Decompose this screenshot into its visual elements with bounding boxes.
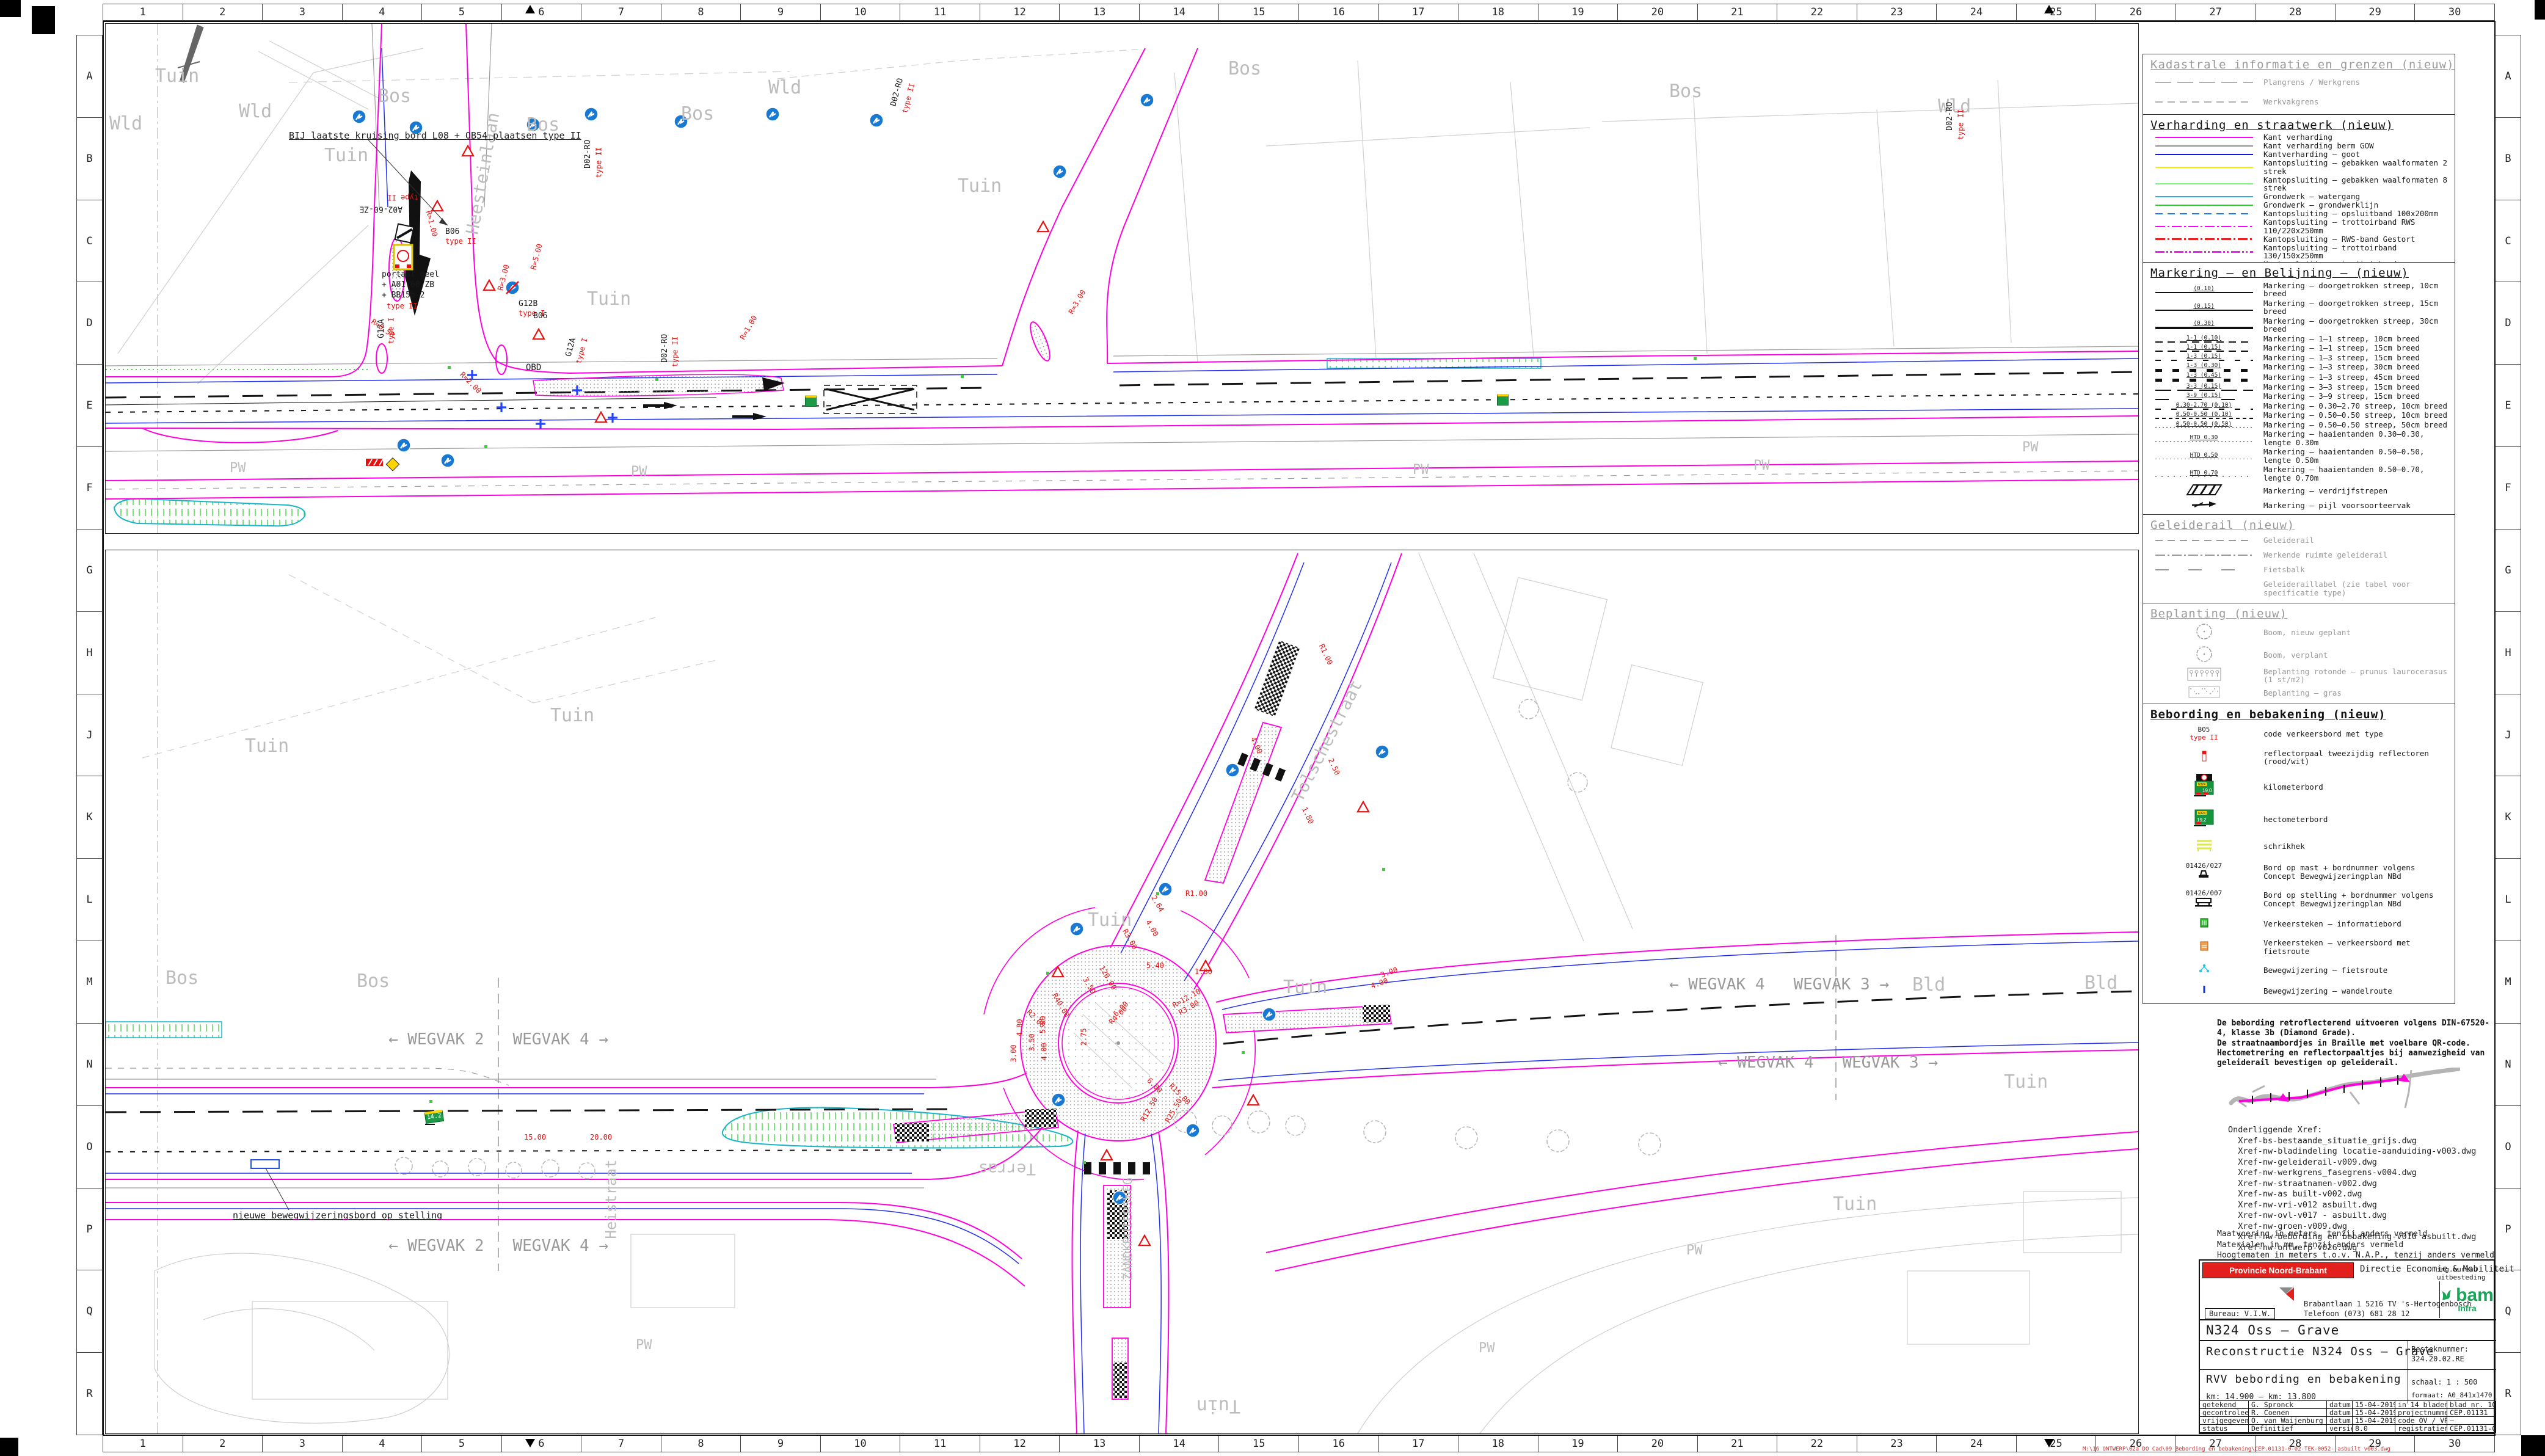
grid-number-cell: 11 <box>900 4 980 21</box>
legend-label: Beplanting rotonde – prunus laurocerasus… <box>2263 668 2449 685</box>
legend-code: 01426/007 <box>2186 890 2223 897</box>
legend-sample <box>2150 82 2257 83</box>
grid-number-cell: 28 <box>2256 4 2336 21</box>
hectometer-board <box>1497 394 1509 406</box>
d02-sign-icons <box>352 93 1154 467</box>
legend-label: Grondwerk – watergang <box>2263 192 2360 201</box>
legend-line-sample <box>2155 154 2253 155</box>
grid-number-cell: 9 <box>741 4 821 21</box>
map-label: Tuin <box>1283 978 1327 997</box>
map-label: ← WEGVAK 4 WEGVAK 3 → <box>1669 977 1889 993</box>
title-block-cell: datum <box>2327 1409 2353 1417</box>
map-label: D02-RO <box>661 334 669 363</box>
map-label: portaal geel <box>382 271 439 279</box>
legend-section-title: Beplanting (nieuw) <box>2150 607 2449 621</box>
legend-row: Kantopsluiting – gebakken waalformaten 2… <box>2150 159 2449 176</box>
legend-row: HTD 0.50Markering – haaientanden 0.50–0.… <box>2150 448 2449 465</box>
legend-line-sample <box>2155 183 2253 184</box>
legend-sample: 1-3 (0.15) <box>2150 354 2257 361</box>
map-label: PW <box>636 1338 652 1352</box>
legend-code-type: type II <box>2190 734 2218 741</box>
legend-label: Verkeersteken – informatiebord <box>2263 920 2401 928</box>
grid-number-cell: 30 <box>2415 1435 2495 1452</box>
legend-sample <box>2150 213 2257 214</box>
legend-line-sample: HTD 0.30 <box>2155 441 2253 442</box>
top-ruler: 1234567891011121314151617181920212223242… <box>103 4 2495 21</box>
legend-label: Markering – 1–3 streep, 30cm breed <box>2263 363 2420 371</box>
grid-number-cell: 9 <box>741 1435 821 1452</box>
legend-line-tag: 1-3 (0.30) <box>2155 362 2253 369</box>
provincie-logo-icon <box>2278 1286 2296 1305</box>
legend-line-sample <box>2155 82 2253 83</box>
legend-line-tag: 0.50-0.50 (0.50) <box>2155 421 2253 428</box>
corner-mark <box>2521 1435 2545 1456</box>
legend-row: 1-1 (0.15)Markering – 1–1 streep, 15cm b… <box>2150 344 2449 352</box>
legend-label: schrikhek <box>2263 842 2305 851</box>
grid-number-cell: 13 <box>1060 4 1140 21</box>
map-label: Tuin <box>1088 911 1132 930</box>
map-label: Tuin <box>1196 1396 1240 1416</box>
grid-number-cell: 10 <box>821 1435 901 1452</box>
legend-line-sample: 3-3 (0.15) <box>2155 390 2253 391</box>
legend-section-title: Markering – en Belijning – (nieuw) <box>2150 266 2449 280</box>
grid-number-cell: 15 <box>1219 1435 1299 1452</box>
project-title: N324 Oss – Grave <box>2206 1323 2339 1338</box>
map-label: B06 <box>533 312 547 321</box>
grid-number-cell: 12 <box>980 4 1060 21</box>
legend-label: Markering – pijl voorsoorteervak <box>2263 501 2411 510</box>
legend-line-tag: 1-3 (0.45) <box>2155 372 2253 379</box>
legend-row: N32419,0kilometerbord <box>2150 774 2449 801</box>
corner-mark <box>2535 0 2545 20</box>
legend-label: Markering – 3–3 streep, 15cm breed <box>2263 383 2420 391</box>
grid-letter-cell: G <box>76 530 103 612</box>
legend-label: Bewegwijzering – fietsroute <box>2263 966 2387 975</box>
xref-file: Xref-nw-werkgrens_fasegrens-v004.dwg <box>2228 1168 2476 1179</box>
map-label: ZANDKRUIERSWEG <box>1122 1178 1135 1281</box>
map-label: 5.00 <box>1039 1016 1047 1033</box>
legend-line-tag: 1-1 (0.15) <box>2155 344 2253 351</box>
map-label: 3.00 <box>1010 1044 1018 1062</box>
grid-letter-cell: D <box>76 282 103 365</box>
map-label: PW <box>230 461 246 475</box>
grid-letter-cell: C <box>76 200 103 283</box>
grid-letter-cell: J <box>2495 694 2521 777</box>
grid-number-cell: 1 <box>103 1435 183 1452</box>
grid-number-cell: 25 <box>2017 4 2097 21</box>
legend-row: Kant verharding berm GOW <box>2150 142 2449 150</box>
grid-number-cell: 19 <box>1538 1435 1618 1452</box>
legend-sample: (0.30) <box>2150 321 2257 329</box>
b01-sign-icon <box>386 458 399 471</box>
legend-sample <box>2150 226 2257 228</box>
grid-number-cell: 30 <box>2415 4 2495 21</box>
title-block-cell: 15-04-2019 <box>2353 1409 2395 1417</box>
formaat: formaat: A0_841x1470 <box>2411 1391 2492 1399</box>
grid-letter-cell: R <box>76 1353 103 1435</box>
legend-sample <box>2150 622 2257 643</box>
zone60-portal-icon <box>394 224 413 269</box>
legend-row: 1-3 (0.15)Markering – 1–3 streep, 15cm b… <box>2150 353 2449 362</box>
legend-sample: HTD 0.30 <box>2150 435 2257 442</box>
legend-section: Verharding en straatwerk (nieuw)Kant ver… <box>2143 114 2455 263</box>
legend-sample <box>2150 555 2257 556</box>
title-block-cell: getekend <box>2200 1401 2249 1409</box>
note-line: Hectometrering en reflectorpaaltjes bij … <box>2217 1049 2492 1069</box>
legend-sample <box>2150 196 2257 197</box>
map-label: type II <box>1957 109 1965 140</box>
legend-code: 01426/027 <box>2186 862 2223 870</box>
map-label: + BB15b-2 <box>382 291 424 300</box>
legend-row: (0.15)Markering – doorgetrokken streep, … <box>2150 299 2449 316</box>
legend-line-tag: HTD 0.30 <box>2155 434 2253 441</box>
legend-row: Werkvakgrens <box>2150 98 2449 106</box>
map-label: 5.40 <box>1146 962 1164 970</box>
legend-line-sample: 0.50-0.50 (0.10) <box>2155 418 2253 419</box>
legend-line-tag: HTD 0.50 <box>2155 452 2253 459</box>
legend-row: HTD 0.30Markering – haaientanden 0.30–0.… <box>2150 430 2449 447</box>
title-block-cell: projectnummer <box>2395 1409 2447 1417</box>
legend-line-sample <box>2155 213 2253 214</box>
title-block-cell: vrijgegeven <box>2200 1417 2249 1425</box>
legend-sample <box>2150 101 2257 103</box>
fold-mark <box>2044 5 2054 13</box>
grid-number-cell: 5 <box>422 1435 502 1452</box>
map-label: type II <box>387 194 418 202</box>
map-label: G12B <box>519 300 537 308</box>
grid-number-cell: 19 <box>1538 4 1618 21</box>
sym-shrub-icon <box>2187 668 2221 683</box>
grid-number-cell: 14 <box>1140 1435 1220 1452</box>
grid-number-cell: 2 <box>183 4 263 21</box>
legend-label: Markering – 1–3 streep, 45cm breed <box>2263 373 2420 382</box>
legend-section-title: Verharding en straatwerk (nieuw) <box>2150 118 2449 132</box>
grid-letter-cell: A <box>76 35 103 118</box>
title-block-cell: Definitief <box>2249 1425 2327 1433</box>
legend-line-tag: (0.30) <box>2155 320 2253 327</box>
general-notes: De bebording retroflecterend uitvoeren v… <box>2217 1019 2492 1068</box>
grid-letter-cell: K <box>76 776 103 859</box>
legend-row: Verkeersteken – verkeersbord met fietsro… <box>2150 939 2449 956</box>
legend-line-sample: HTD 0.70 <box>2155 476 2253 478</box>
corner-mark <box>32 6 55 34</box>
legend-label: code verkeersbord met type <box>2263 730 2383 738</box>
right-ruler: ABCDEFGHJKLMNOPQR <box>2495 35 2521 1435</box>
legend-label: Boom, nieuw geplant <box>2263 628 2351 637</box>
fold-mark <box>525 5 535 13</box>
legend-label: Kantopsluiting – RWS-band Gestort <box>2263 235 2415 244</box>
legend-sample <box>2150 963 2257 977</box>
legend-sample <box>2150 154 2257 155</box>
sym-tree-icon <box>2194 622 2215 643</box>
title-block-cell: code OV / VRI <box>2395 1417 2447 1425</box>
barrier-board-icon <box>366 459 383 466</box>
legend-section-title: Bebording en bebakening (nieuw) <box>2150 708 2449 721</box>
legend-sample <box>2150 183 2257 184</box>
grid-letter-cell: H <box>76 612 103 694</box>
title-block-cell: CEP.01131-0-02-TEK-0052-010 <box>2447 1425 2496 1433</box>
legend-line-sample: 1-1 (0.10) <box>2155 341 2253 343</box>
plan-view-bottom: TuinTuinTuinTuinTuinTuinTuinBosBosBldBld… <box>105 550 2139 1434</box>
legend-line-sample <box>2155 226 2253 228</box>
grid-letter-cell: B <box>2495 118 2521 200</box>
legend-label: Plangrens / Werkgrens <box>2263 78 2360 87</box>
legend-row: Kant verharding <box>2150 133 2449 142</box>
legend-line-sample: (0.30) <box>2155 327 2253 329</box>
bam-name: bam <box>2456 1287 2494 1303</box>
legend-sample: (0.15) <box>2150 304 2257 311</box>
legend-row: Werkende ruimte geleiderail <box>2150 551 2449 559</box>
hectometer-board <box>805 395 817 407</box>
grid-letter-cell: N <box>2495 1024 2521 1106</box>
grid-letter-cell: K <box>2495 776 2521 859</box>
title-block-cell: in 14 bladen <box>2395 1401 2447 1409</box>
xref-file: Xref-nw-as built-v002.dwg <box>2228 1189 2476 1200</box>
legend-line-sample <box>2155 196 2253 197</box>
left-ruler: ABCDEFGHJKLMNOPQR <box>76 35 103 1435</box>
legend-label: Boom, verplant <box>2263 651 2328 660</box>
legend-sample <box>2150 668 2257 683</box>
grid-number-cell: 22 <box>1777 1435 1857 1452</box>
legend-label: Markering – doorgetrokken streep, 15cm b… <box>2263 299 2449 316</box>
legend-sample <box>2150 645 2257 666</box>
bam-sub: Infra <box>2458 1303 2476 1313</box>
map-label: Bld <box>1912 975 1945 995</box>
legend-label: Markering – haaientanden 0.30–0.30, leng… <box>2263 430 2449 447</box>
title-block-cell: 15-04-2019 <box>2353 1417 2395 1425</box>
legend-symbol: B05type II <box>2190 726 2218 741</box>
xref-file: Xref-nw-bladindeling locatie-aanduiding-… <box>2228 1146 2476 1157</box>
legend-line-sample: (0.15) <box>2155 310 2253 311</box>
legend-label: Kantopsluiting – trottoirband RWS 110/22… <box>2263 218 2449 235</box>
grid-letter-cell: L <box>2495 859 2521 941</box>
grid-letter-cell: O <box>76 1106 103 1188</box>
units-line: Maatvoering in meters, tenzij anders ver… <box>2217 1229 2494 1240</box>
legend-label: Beplanting – gras <box>2263 689 2342 697</box>
legend-row: Geleiderail <box>2150 536 2449 545</box>
legend-sample: (0.10) <box>2150 286 2257 293</box>
map-label: Bld <box>2084 974 2117 993</box>
map-label: D02-RO <box>1946 102 1954 131</box>
sheet-title: RVV bebording en bebakening <box>2206 1373 2401 1386</box>
title-block-cell: versie <box>2327 1425 2353 1433</box>
legend-label: Kant verharding berm GOW <box>2263 142 2374 150</box>
legend-line-tag: 0.30-2.70 (0.10) <box>2155 402 2253 409</box>
legend-label: Bord op stelling + bordnummer volgens Co… <box>2263 891 2449 908</box>
legend-sample: 01426/027 <box>2150 862 2257 882</box>
grid-letter-cell: Q <box>76 1270 103 1353</box>
project-subtitle: Reconstructie N324 Oss – Grave <box>2206 1345 2434 1358</box>
svg-text:N324: N324 <box>2198 812 2205 815</box>
legend-label: Kantverharding – goot <box>2263 150 2360 159</box>
map-label: PW <box>1413 463 1429 477</box>
legend-label: Markering – doorgetrokken streep, 30cm b… <box>2263 317 2449 334</box>
grid-number-cell: 1 <box>103 4 183 21</box>
grid-number-cell: 3 <box>263 1435 343 1452</box>
units-line: Materialen in mm, tenzij anders vermeld <box>2217 1240 2494 1251</box>
legend-row: Geleideraillabel (zie tabel voor specifi… <box>2150 580 2449 597</box>
map-label: Bos <box>357 972 390 991</box>
map-label: Heistraat <box>603 1160 619 1239</box>
map-label: type II <box>387 302 418 310</box>
legend-sample <box>2150 839 2257 854</box>
legend-row: Bewegwijzering – wandelroute <box>2150 985 2449 997</box>
legend-row: Kantopsluiting – gebakken waalformaten 8… <box>2150 176 2449 193</box>
sym-grass-icon <box>2188 686 2220 701</box>
grid-number-cell: 3 <box>263 4 343 21</box>
legend-line-sample: HTD 0.50 <box>2155 459 2253 460</box>
legend-row: Beplanting – gras <box>2150 686 2449 701</box>
legend-label: Markering – 0.50–0.50 streep, 10cm breed <box>2263 411 2447 420</box>
title-block-cell: O. van Waijenburg <box>2249 1417 2327 1425</box>
grid-number-cell: 6 <box>502 4 582 21</box>
legend-sample <box>2150 137 2257 138</box>
legend-label: Markering – 0.30–2.70 streep, 10cm breed <box>2263 402 2447 410</box>
legend-section: Geleiderail (nieuw)GeleiderailWerkende r… <box>2143 514 2455 603</box>
map-label: PW <box>2022 440 2039 454</box>
map-label: Tuin <box>2004 1072 2048 1092</box>
legend-label: Markering – haaientanden 0.50–0.70, leng… <box>2263 465 2449 482</box>
provincie-banner: Provincie Noord-Brabant <box>2202 1262 2354 1278</box>
legend-line-tag: 1-1 (0.10) <box>2155 335 2253 341</box>
grid-number-cell: 17 <box>1379 4 1459 21</box>
grid-number-cell: 21 <box>1698 1435 1778 1452</box>
legend-row: 01426/007Bord op stelling + bordnummer v… <box>2150 890 2449 909</box>
map-label: Tuin <box>958 177 1002 196</box>
map-label: Tuin <box>155 67 199 86</box>
legend-label: Kantopsluiting – gebakken waalformaten 8… <box>2263 176 2449 193</box>
legend-rows: GeleiderailWerkende ruimte geleiderailFi… <box>2150 533 2449 600</box>
xref-file: Xref-nw-ovl-v017 - asbuilt.dwg <box>2228 1210 2476 1221</box>
grid-number-cell: 7 <box>581 4 661 21</box>
legend-section-title: Kadastrale informatie en grenzen (nieuw) <box>2150 58 2449 71</box>
legend-row: Verkeersteken – informatiebord <box>2150 917 2449 931</box>
sym-verdrijf-icon <box>2186 483 2223 499</box>
map-label: Wld <box>239 102 272 122</box>
legend-label: Markering – 1–3 streep, 15cm breed <box>2263 354 2420 362</box>
legend-label: Kantopsluiting – opsluitband 100x200mm <box>2263 209 2438 218</box>
legend-label: Markering – 3–9 streep, 15cm breed <box>2263 392 2420 401</box>
map-label: Bos <box>1228 59 1261 79</box>
legend-sample <box>2150 569 2257 570</box>
grid-letter-cell: M <box>76 941 103 1024</box>
map-label: 1.80 <box>1195 968 1212 976</box>
legend-row: 01426/027Bord op mast + bordnummer volge… <box>2150 862 2449 882</box>
stelling-marker <box>251 1160 279 1168</box>
legend-rows: Plangrens / WerkgrensWerkvakgrens <box>2150 73 2449 112</box>
grid-number-cell: 23 <box>1857 4 1937 21</box>
title-block-cell: datum <box>2327 1401 2353 1409</box>
legend-row: 0.30-2.70 (0.10)Markering – 0.30–2.70 st… <box>2150 402 2449 410</box>
grid-letter-cell: A <box>2495 35 2521 118</box>
legend-row: schrikhek <box>2150 839 2449 854</box>
grid-letter-cell: C <box>2495 200 2521 283</box>
legend-line-sample <box>2155 540 2253 541</box>
legend-sample: 3-3 (0.15) <box>2150 384 2257 391</box>
legend-row: Kantopsluiting – trottoirband 130/150x25… <box>2150 244 2449 261</box>
legend-sample <box>2150 751 2257 764</box>
legend-row: N32419,2hectometerbord <box>2150 809 2449 831</box>
map-label: Bos <box>681 104 714 124</box>
xref-file: Xref-nw-geleiderail-v009.dwg <box>2228 1157 2476 1168</box>
legend-row: 1-3 (0.30)Markering – 1–3 streep, 30cm b… <box>2150 363 2449 372</box>
legend-rows: B05type IIcode verkeersbord met typerefl… <box>2150 723 2449 1001</box>
grid-number-cell: 6 <box>502 1435 582 1452</box>
legend-sample: 0.50-0.50 (0.10) <box>2150 412 2257 419</box>
title-block-cell: gecontroleerd <box>2200 1409 2249 1417</box>
legend-row: Kantverharding – goot <box>2150 150 2449 159</box>
grid-number-cell: 14 <box>1140 4 1220 21</box>
bam-logo: bam Infra <box>2439 1281 2494 1318</box>
title-block-cell: R. Coenen <box>2249 1409 2327 1417</box>
map-label: D02-RO <box>584 140 592 169</box>
besteknummer: 324.20.02.RE <box>2411 1355 2464 1363</box>
map-label: + A01-60-ZB <box>382 281 434 289</box>
legend-row: Markering – pijl voorsoorteervak <box>2150 500 2449 511</box>
xref-file: Xref-nw-straatnamen-v002.dwg <box>2228 1179 2476 1190</box>
legend-sample: 0.30-2.70 (0.10) <box>2150 402 2257 410</box>
legend-rows: (0.10)Markering – doorgetrokken streep, … <box>2150 281 2449 512</box>
units-notes: Maatvoering in meters, tenzij anders ver… <box>2217 1229 2494 1261</box>
legend-line-sample: 1-3 (0.45) <box>2155 379 2253 382</box>
legend-sample: 1-1 (0.15) <box>2150 344 2257 352</box>
legend-sample: 1-3 (0.45) <box>2150 373 2257 382</box>
legend-sample: 0.50-0.50 (0.50) <box>2150 421 2257 429</box>
sym-reflector-icon <box>2201 751 2207 764</box>
title-block-cell: blad nr. 10 <box>2447 1401 2496 1409</box>
map-label: OBD <box>526 363 541 373</box>
legend-section: Beplanting (nieuw)Boom, nieuw geplantBoo… <box>2143 603 2455 704</box>
title-block-cell: registratienr. <box>2395 1425 2447 1433</box>
legend-line-sample: 0.50-0.50 (0.50) <box>2155 428 2253 429</box>
grid-letter-cell: Q <box>2495 1270 2521 1353</box>
legend-line-sample <box>2155 167 2253 168</box>
legend-row: reflectorpaal tweezijdig reflectoren (ro… <box>2150 749 2449 766</box>
legend-line-sample <box>2155 101 2253 103</box>
map-label: A02-60-ZE <box>360 205 402 213</box>
sym-tree-icon <box>2194 645 2215 666</box>
grid-number-cell: 4 <box>343 4 423 21</box>
legend-sample <box>2150 205 2257 206</box>
legend-line-tag: 0.50-0.50 (0.10) <box>2155 411 2253 418</box>
map-label: 3.50 <box>1029 1033 1036 1051</box>
legend-row: B05type IIcode verkeersbord met type <box>2150 726 2449 741</box>
legend-line-sample <box>2155 555 2253 556</box>
legend-sample: 3-9 (0.15) <box>2150 393 2257 400</box>
note-line: De bebording retroflecterend uitvoeren v… <box>2217 1019 2492 1039</box>
legend-row: 1-1 (0.10)Markering – 1–1 streep, 10cm b… <box>2150 335 2449 343</box>
grid-letter-cell: R <box>2495 1353 2521 1435</box>
legend-sample: N32419,0 <box>2150 774 2257 801</box>
legend-line-sample <box>2155 205 2253 206</box>
provincie-name: Provincie Noord-Brabant <box>2229 1266 2327 1275</box>
svg-text:19,0: 19,0 <box>2202 788 2212 793</box>
legend-sample <box>2150 167 2257 168</box>
map-label: B06 <box>445 228 459 236</box>
legend-row: 0.50-0.50 (0.10)Markering – 0.50–0.50 st… <box>2150 411 2449 420</box>
xref-header: Onderliggende Xref: <box>2228 1125 2476 1136</box>
grid-number-cell: 10 <box>821 4 901 21</box>
legend-line-sample: 1-1 (0.15) <box>2155 351 2253 352</box>
grid-number-cell: 2 <box>183 1435 263 1452</box>
sym-wandel-icon <box>2201 985 2207 997</box>
grid-letter-cell: E <box>76 365 103 447</box>
grid-number-cell: 29 <box>2336 4 2416 21</box>
grid-number-cell: 21 <box>1698 4 1778 21</box>
legend-rows: Boom, nieuw geplantBoom, verplantBeplant… <box>2150 622 2449 701</box>
xref-file: Xref-nw-vri-v012 asbuilt.dwg <box>2228 1200 2476 1211</box>
map-label: Bos <box>166 969 198 988</box>
